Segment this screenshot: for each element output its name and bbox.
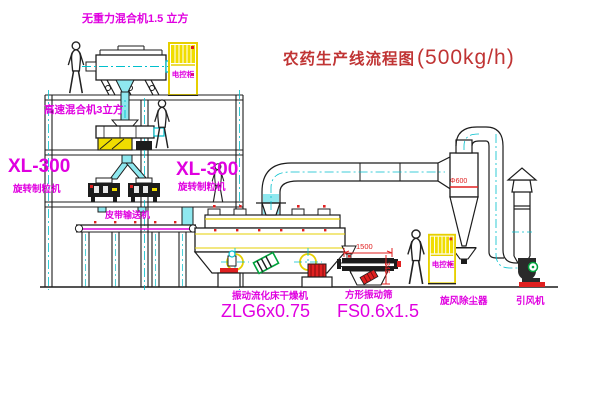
person-icon bbox=[408, 230, 424, 284]
fluid-bed-dryer bbox=[195, 209, 345, 287]
label-cabinet1: 电控柜 bbox=[170, 71, 196, 79]
label-granulator-mid-name: 旋转制粒机 bbox=[178, 183, 226, 193]
granulator-right bbox=[128, 178, 160, 202]
label-cabinet2: 电控柜 bbox=[430, 261, 456, 269]
exhaust-duct bbox=[256, 156, 452, 215]
label-granulator-mid-model: XL-300 bbox=[176, 160, 238, 179]
person-icon bbox=[68, 42, 83, 93]
label-cyclone: 旋风除尘器 bbox=[440, 297, 488, 307]
duct-centerline bbox=[271, 172, 445, 210]
label-granulator-left-model: XL-300 bbox=[8, 157, 70, 176]
diagram-title: 农药生产线流程图 (500kg/h) bbox=[283, 46, 515, 70]
granulator-left bbox=[88, 178, 120, 202]
label-granulator-left-name: 旋转制粒机 bbox=[13, 185, 61, 195]
person-icon bbox=[155, 100, 170, 148]
dim-sieve-height: 345 bbox=[383, 262, 390, 274]
process-flow-diagram: 农药生产线流程图 (500kg/h) 无重力混合机1.5 立方 高速混合机3立方… bbox=[0, 0, 600, 403]
label-sieve-name: 方形振动筛 bbox=[345, 291, 393, 301]
title-text: 农药生产线流程图 bbox=[283, 47, 415, 69]
label-sieve-model: FS0.6x1.5 bbox=[337, 302, 419, 320]
label-fan: 引风机 bbox=[516, 297, 545, 307]
title-capacity: (500kg/h) bbox=[417, 46, 515, 70]
label-gravity-mixer: 无重力混合机1.5 立方 bbox=[82, 14, 188, 25]
belt-conveyor bbox=[75, 225, 196, 287]
induced-draft-fan bbox=[518, 258, 545, 287]
label-belt-conveyor: 皮带输送机 bbox=[105, 211, 150, 220]
dim-cyclone-diameter: Φ600 bbox=[450, 178, 467, 185]
dim-sieve-width: 1500 bbox=[356, 243, 373, 251]
exhaust-stack bbox=[508, 168, 536, 263]
label-dryer-model: ZLG6x0.75 bbox=[221, 302, 310, 320]
vibrating-sieve bbox=[337, 246, 401, 285]
label-high-speed-mixer: 高速混合机3立方 bbox=[44, 105, 123, 116]
